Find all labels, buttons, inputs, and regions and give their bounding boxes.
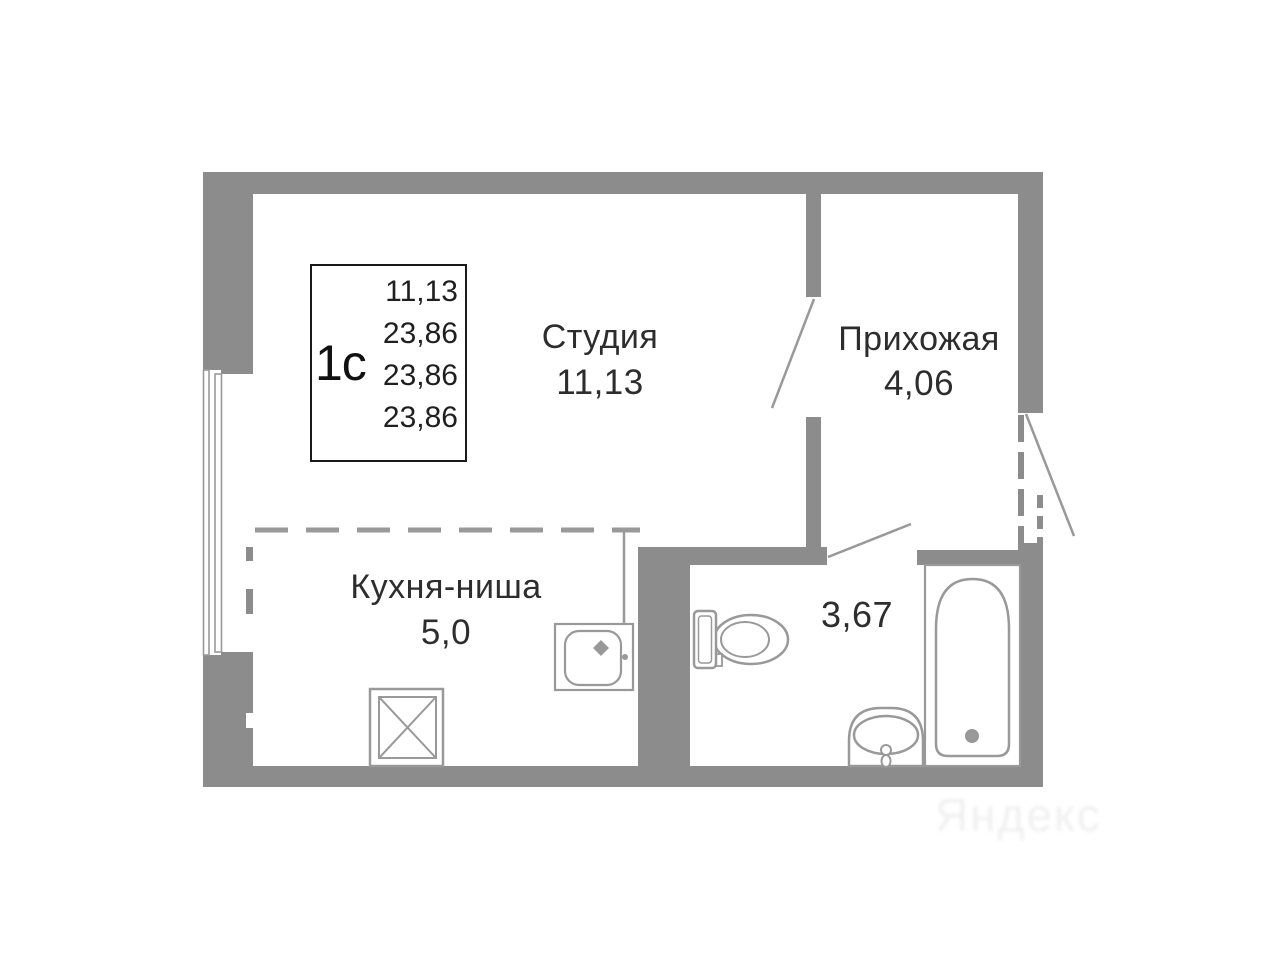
entrance-door-icon bbox=[1021, 414, 1074, 543]
unit-area-line: 23,86 bbox=[383, 397, 458, 439]
bathroom-door-icon bbox=[828, 524, 911, 557]
window-icon bbox=[204, 368, 254, 658]
wall-bottom bbox=[203, 766, 1043, 787]
room-area-studio: 11,13 bbox=[556, 363, 644, 403]
wall-studio-hallway-lower bbox=[806, 417, 821, 548]
wall-right-lower bbox=[1018, 543, 1043, 787]
room-area-bathroom: 3,67 bbox=[821, 594, 893, 636]
floorplan-canvas: 1с 11,13 23,86 23,86 23,86 Студия 11,13 … bbox=[0, 0, 1280, 960]
room-area-kitchen: 5,0 bbox=[421, 613, 471, 653]
unit-info-box: 1с 11,13 23,86 23,86 23,86 bbox=[310, 264, 467, 462]
bathtub-icon bbox=[925, 565, 1020, 766]
watermark-text: Яндекс bbox=[935, 788, 1165, 842]
room-area-hallway: 4,06 bbox=[884, 364, 954, 404]
room-label-studio: Студия bbox=[542, 318, 659, 357]
interior-door-icon bbox=[772, 299, 814, 408]
toilet-icon bbox=[694, 611, 788, 668]
bathroom-sink-icon bbox=[849, 708, 923, 767]
unit-area-line: 23,86 bbox=[383, 355, 458, 397]
unit-areas-list: 11,13 23,86 23,86 23,86 bbox=[383, 271, 458, 439]
kitchen-sink-icon bbox=[555, 624, 633, 690]
wall-top bbox=[203, 172, 1043, 194]
wall-studio-hallway-upper bbox=[806, 194, 821, 297]
wall-notch bbox=[246, 713, 253, 728]
wall-kitchen-bathroom bbox=[638, 547, 690, 766]
room-label-hallway: Прихожая bbox=[838, 320, 1000, 359]
wall-right-upper bbox=[1018, 194, 1043, 413]
unit-area-line: 23,86 bbox=[383, 313, 458, 355]
wall-bathroom-top-right bbox=[917, 550, 1018, 565]
wall-left-upper bbox=[203, 194, 253, 370]
stove-icon bbox=[370, 689, 443, 766]
room-label-kitchen: Кухня-ниша bbox=[350, 568, 541, 607]
unit-type-label: 1с bbox=[315, 334, 366, 392]
unit-area-line: 11,13 bbox=[383, 271, 458, 313]
